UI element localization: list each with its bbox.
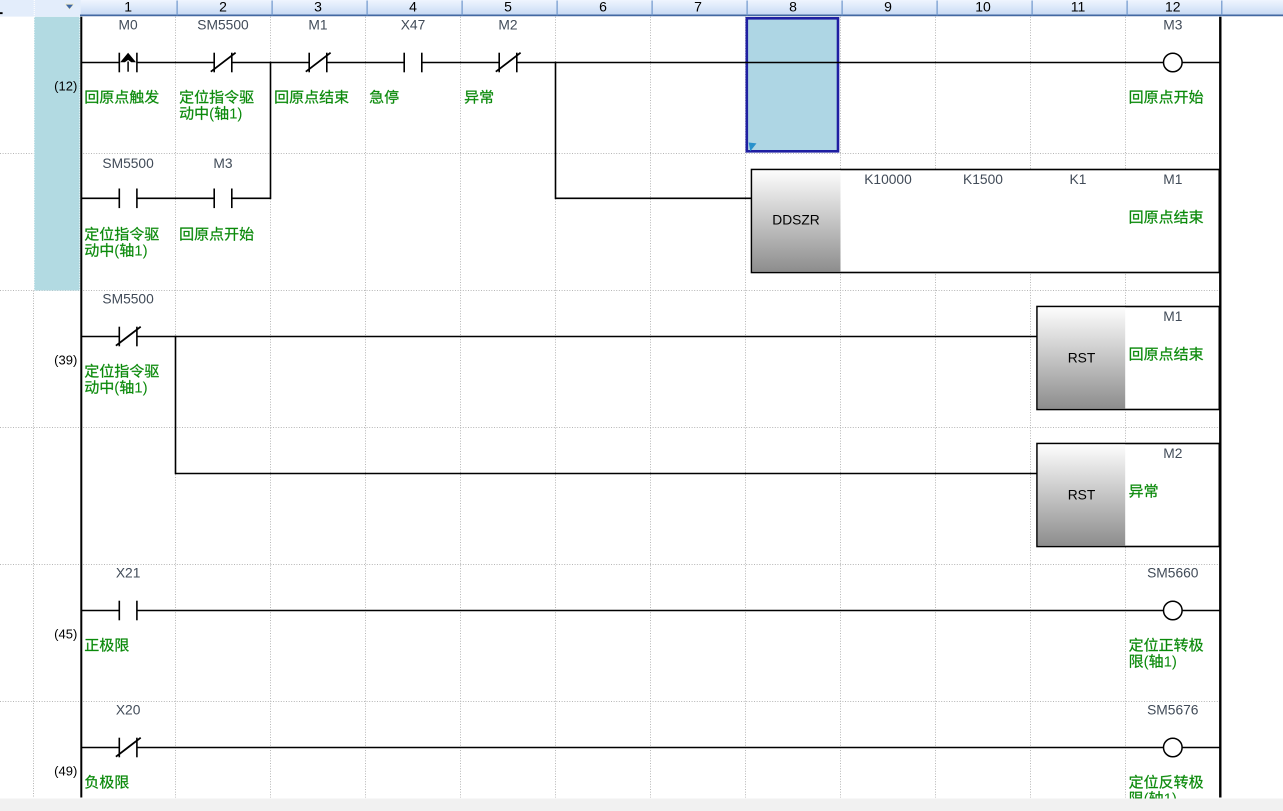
svg-text:(45): (45) bbox=[54, 626, 77, 641]
svg-text:M1: M1 bbox=[1163, 309, 1182, 324]
svg-text:X21: X21 bbox=[116, 566, 141, 581]
svg-text:3: 3 bbox=[314, 0, 322, 15]
svg-text:(49): (49) bbox=[54, 763, 77, 778]
svg-text:11: 11 bbox=[1071, 0, 1086, 15]
svg-text:7: 7 bbox=[694, 0, 702, 15]
svg-text:SM5500: SM5500 bbox=[102, 156, 154, 171]
svg-text:M1: M1 bbox=[1163, 172, 1182, 187]
svg-text:M1: M1 bbox=[308, 18, 327, 33]
svg-text:SM5500: SM5500 bbox=[102, 292, 154, 307]
svg-text:M0: M0 bbox=[119, 18, 138, 33]
svg-text:DDSZR: DDSZR bbox=[772, 213, 820, 228]
svg-text:RST: RST bbox=[1068, 351, 1096, 366]
svg-text:K10000: K10000 bbox=[864, 172, 912, 187]
svg-text:X20: X20 bbox=[116, 703, 141, 718]
svg-text:10: 10 bbox=[975, 0, 991, 15]
svg-text:SM5500: SM5500 bbox=[197, 18, 249, 33]
svg-text:1: 1 bbox=[134, 380, 142, 397]
svg-text:(: ( bbox=[114, 380, 119, 397]
svg-text:6: 6 bbox=[599, 0, 607, 15]
svg-text:1: 1 bbox=[1164, 654, 1172, 671]
svg-text:9: 9 bbox=[884, 0, 892, 15]
svg-text:X47: X47 bbox=[401, 18, 426, 33]
svg-text:): ) bbox=[143, 380, 148, 397]
svg-text:(12): (12) bbox=[54, 78, 77, 93]
svg-text:SM5676: SM5676 bbox=[1147, 703, 1199, 718]
svg-text:4: 4 bbox=[409, 0, 417, 15]
svg-text:2: 2 bbox=[219, 0, 227, 15]
svg-text:M2: M2 bbox=[1163, 446, 1182, 461]
svg-text:M3: M3 bbox=[1163, 18, 1182, 33]
svg-text:1: 1 bbox=[134, 243, 142, 260]
svg-text:M3: M3 bbox=[213, 156, 232, 171]
svg-text:12: 12 bbox=[1165, 0, 1181, 15]
svg-text:(: ( bbox=[114, 243, 119, 260]
svg-text:8: 8 bbox=[789, 0, 797, 15]
svg-text:(39): (39) bbox=[54, 352, 77, 367]
svg-text:): ) bbox=[237, 106, 242, 123]
svg-text:K1500: K1500 bbox=[963, 172, 1003, 187]
svg-text:1: 1 bbox=[229, 106, 237, 123]
svg-text:): ) bbox=[143, 243, 148, 260]
svg-text:1: 1 bbox=[124, 0, 132, 15]
svg-text:RST: RST bbox=[1068, 488, 1096, 503]
svg-text:5: 5 bbox=[504, 0, 512, 15]
svg-text:K1: K1 bbox=[1070, 172, 1087, 187]
svg-text:(: ( bbox=[1144, 654, 1149, 671]
svg-text:): ) bbox=[1172, 654, 1177, 671]
svg-text:SM5660: SM5660 bbox=[1147, 566, 1199, 581]
svg-text:(: ( bbox=[209, 106, 214, 123]
svg-text:M2: M2 bbox=[498, 18, 517, 33]
